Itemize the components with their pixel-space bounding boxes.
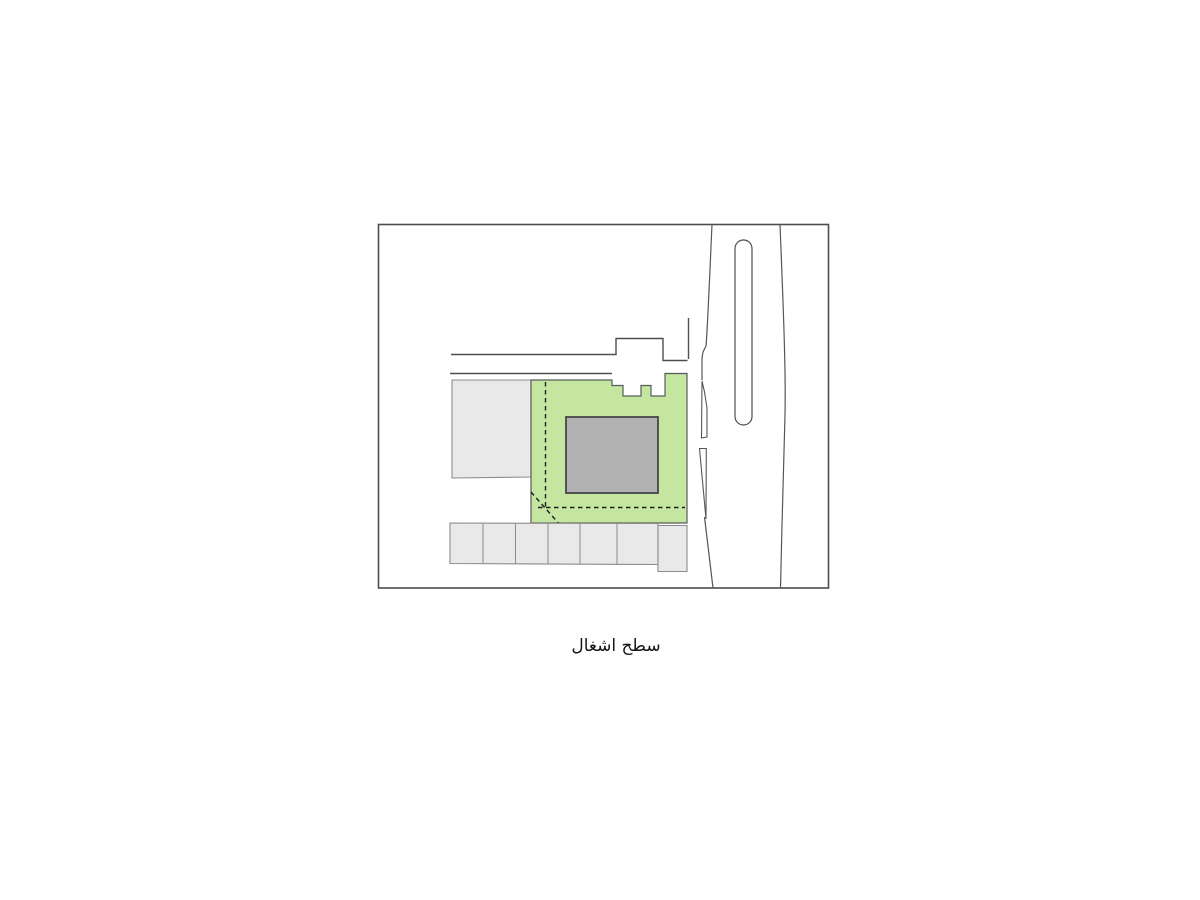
road-curb-sliver-upper xyxy=(702,381,708,438)
road-left-edge xyxy=(702,225,712,381)
road-left-edge-lower xyxy=(705,517,714,588)
road-right-edge xyxy=(780,225,785,589)
plan-caption: سطح اشغال xyxy=(476,636,756,656)
row-houses-strip xyxy=(450,523,658,565)
street-edge-upper xyxy=(451,339,688,361)
road-median-island xyxy=(735,240,752,425)
building-footprint xyxy=(566,417,658,493)
road-curb-sliver-lower xyxy=(700,449,707,520)
page: سطح اشغال xyxy=(0,0,1200,900)
site-plan-drawing xyxy=(0,0,1200,900)
row-house-corner-unit xyxy=(658,526,687,572)
neighbor-parcel xyxy=(452,380,531,478)
